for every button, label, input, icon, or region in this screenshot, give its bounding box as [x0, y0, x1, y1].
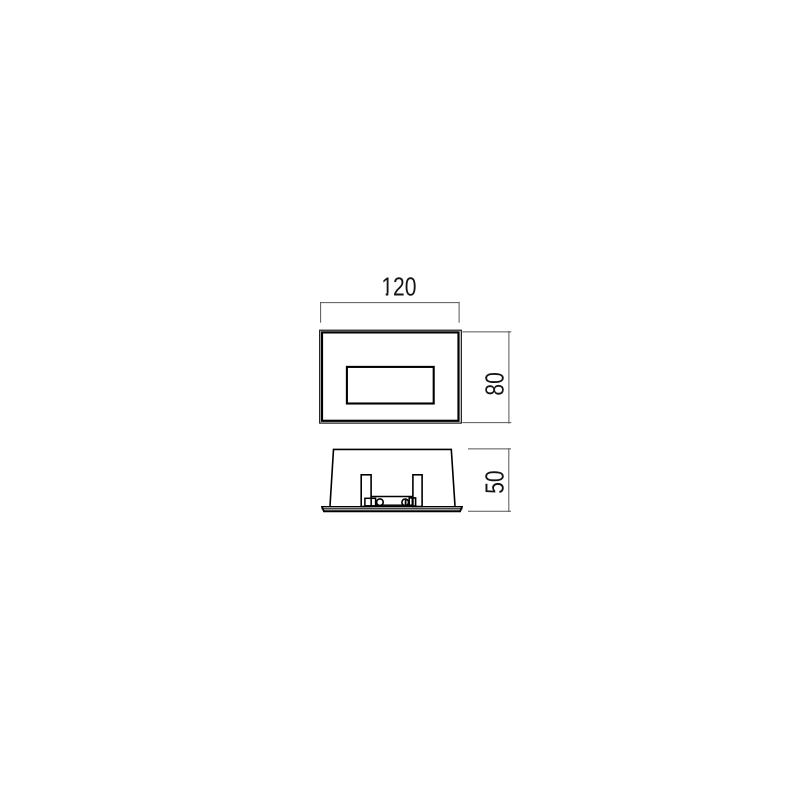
svg-text:120: 120 [381, 274, 416, 303]
svg-text:50: 50 [482, 470, 511, 493]
svg-text:80: 80 [482, 372, 511, 395]
